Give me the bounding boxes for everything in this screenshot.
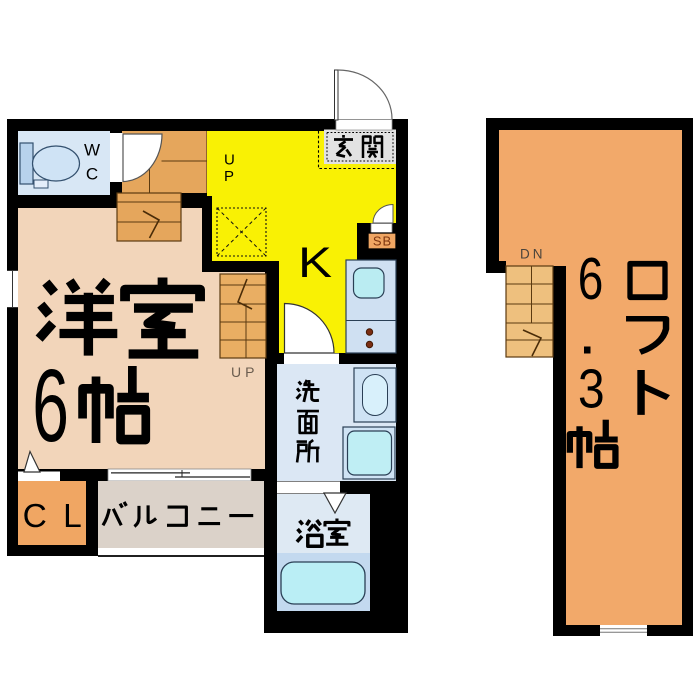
svg-text:6: 6 [32, 349, 69, 463]
svg-text:UP: UP [231, 364, 258, 380]
svg-text:K: K [298, 239, 332, 286]
svg-text:DN: DN [520, 247, 546, 262]
svg-text:U: U [224, 152, 235, 169]
svg-text:W: W [84, 141, 100, 160]
svg-text:3: 3 [578, 357, 605, 419]
svg-text:P: P [224, 168, 234, 185]
svg-text:C: C [86, 165, 98, 184]
svg-text:6: 6 [578, 247, 604, 313]
svg-text:C L: C L [23, 498, 86, 535]
svg-text:SB: SB [373, 234, 392, 249]
